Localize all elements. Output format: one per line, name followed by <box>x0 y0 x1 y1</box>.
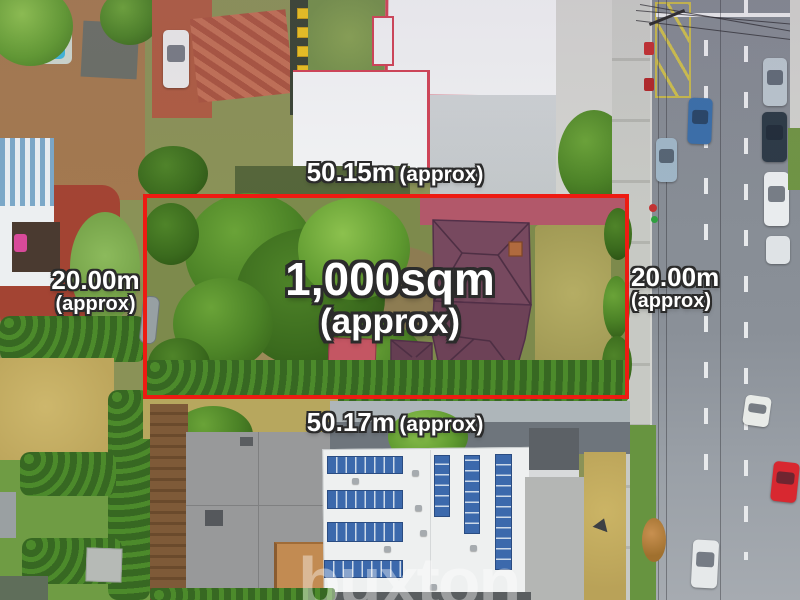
play-equipment <box>14 234 27 252</box>
striped-roof <box>0 138 54 206</box>
area-label: 1,000sqm (approx) <box>230 256 550 339</box>
grass-verge <box>630 425 656 600</box>
roadside-bin-red <box>644 78 654 91</box>
small-shed-roof <box>85 547 122 582</box>
solar-panel-array <box>327 490 403 509</box>
solar-panel-array <box>434 455 450 517</box>
roof-vent <box>352 478 359 484</box>
hedge-row <box>0 316 146 362</box>
car-parked-white <box>766 236 790 264</box>
roadside-bin-red <box>644 42 654 55</box>
top-dimension-label: 50.15m (approx) <box>240 158 550 187</box>
concrete-strip <box>525 477 587 600</box>
hedge-row <box>20 452 116 496</box>
bottom-dimension-qualifier: (approx) <box>399 413 483 436</box>
traffic-signal-dot <box>651 216 658 223</box>
right-dimension-label: 20.00m (approx) <box>631 263 751 313</box>
car-parked-silver <box>763 58 787 106</box>
top-dimension-value: 50.15m <box>307 157 395 187</box>
area-qualifier: (approx) <box>230 304 550 339</box>
car-parked-white <box>764 172 789 226</box>
verge-bush-orange <box>642 518 666 562</box>
gray-roof-edge <box>0 492 16 538</box>
traffic-signal-dot <box>649 204 657 212</box>
car-parked-dark <box>762 112 787 162</box>
footpath-corner <box>790 0 800 140</box>
path-corner <box>0 576 48 600</box>
car-silver <box>656 138 677 182</box>
area-value: 1,000sqm <box>230 256 550 302</box>
left-dimension-qualifier: (approx) <box>28 294 163 316</box>
roof-vent <box>415 505 422 511</box>
white-industrial-roof <box>293 70 430 170</box>
top-dimension-qualifier: (approx) <box>399 163 483 186</box>
drain-grate <box>205 510 223 526</box>
bottom-dimension-label: 50.17m (approx) <box>240 408 550 437</box>
agency-watermark: buxton <box>298 542 519 600</box>
white-ute <box>163 30 189 88</box>
dry-lawn <box>0 358 114 466</box>
grass-verge <box>788 128 800 190</box>
car-red <box>770 461 800 503</box>
solar-panel-array <box>327 456 403 474</box>
ute-white <box>742 394 772 427</box>
van-white <box>691 539 719 588</box>
right-dimension-value: 20.00m <box>631 263 751 291</box>
left-dimension-value: 20.00m <box>28 266 163 294</box>
terracotta-roof <box>190 9 294 103</box>
timber-pergola <box>150 404 188 600</box>
right-dimension-qualifier: (approx) <box>631 291 751 313</box>
left-dimension-label: 20.00m (approx) <box>28 266 163 316</box>
tree <box>138 146 208 201</box>
roof-vent <box>420 530 427 536</box>
aerial-photo: 50.15m (approx) 20.00m (approx) 20.00m (… <box>0 0 800 600</box>
bottom-dimension-value: 50.17m <box>307 407 395 437</box>
roof-edge <box>529 470 579 477</box>
solar-panel-array <box>327 522 403 542</box>
drain-grate <box>240 437 253 446</box>
solar-panel-array <box>464 455 480 534</box>
car-blue-moving <box>687 98 713 145</box>
parking-joint <box>258 432 259 600</box>
roof-vent <box>412 470 419 476</box>
white-roof-tab <box>372 16 394 66</box>
